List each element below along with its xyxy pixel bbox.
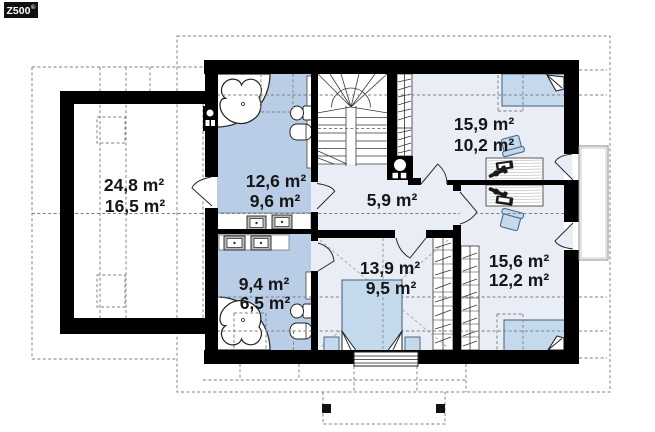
svg-text:12,2 m²: 12,2 m²: [489, 270, 549, 290]
svg-text:16,5 m²: 16,5 m²: [105, 196, 165, 216]
svg-text:©: ©: [31, 4, 36, 11]
svg-text:6,5 m²: 6,5 m²: [240, 293, 291, 313]
svg-text:9,5 m²: 9,5 m²: [366, 278, 417, 298]
svg-text:5,9 m²: 5,9 m²: [367, 190, 418, 210]
svg-text:24,8 m²: 24,8 m²: [104, 175, 164, 195]
svg-text:13,9 m²: 13,9 m²: [360, 258, 420, 278]
svg-text:Z500: Z500: [7, 5, 31, 17]
svg-text:9,4 m²: 9,4 m²: [239, 274, 290, 294]
svg-text:9,6 m²: 9,6 m²: [250, 191, 301, 211]
svg-text:10,2 m²: 10,2 m²: [454, 135, 514, 155]
svg-text:15,9 m²: 15,9 m²: [454, 114, 514, 134]
svg-text:12,6 m²: 12,6 m²: [246, 171, 306, 191]
svg-text:15,6 m²: 15,6 m²: [489, 251, 549, 271]
